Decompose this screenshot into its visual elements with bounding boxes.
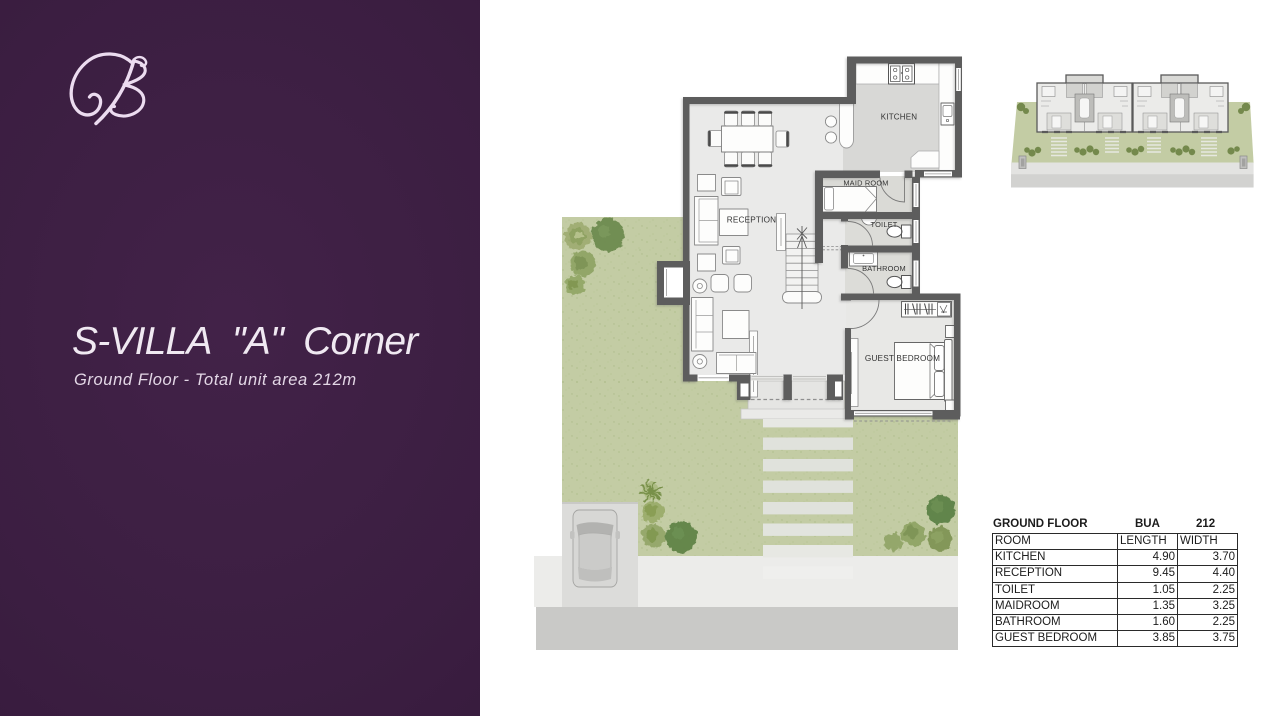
svg-text:RECEPTION: RECEPTION xyxy=(727,216,777,225)
svg-text:TOILET: TOILET xyxy=(871,220,898,229)
svg-text:BATHROOM: BATHROOM xyxy=(862,264,906,273)
svg-text:GUEST BEDROOM: GUEST BEDROOM xyxy=(865,354,940,363)
svg-text:KITCHEN: KITCHEN xyxy=(881,113,918,122)
svg-text:MAID ROOM: MAID ROOM xyxy=(843,179,888,188)
